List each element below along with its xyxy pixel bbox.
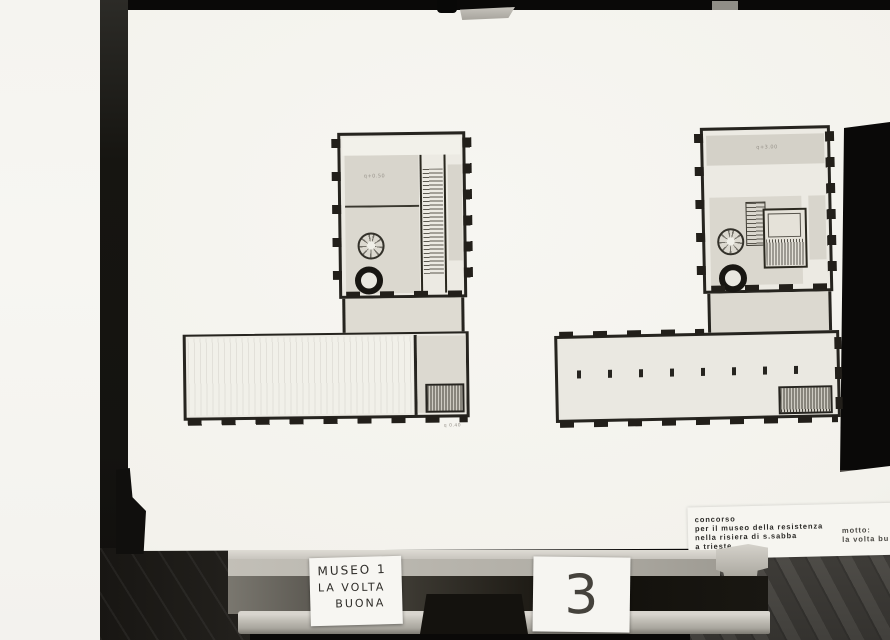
plan-right-stairbox: [778, 385, 833, 414]
board-clip-shadow: [460, 7, 515, 20]
title-card: MUSEO 1 LA VOLTA BUONA: [309, 556, 403, 626]
plan-left-pilasters-east: [462, 137, 473, 287]
motto-label: motto: la volta bu: [842, 525, 889, 544]
title-card-line-2: LA VOLTA: [318, 580, 402, 594]
plan-right-side-room: [808, 195, 826, 259]
easel-top-rail-face: [228, 559, 720, 576]
top-edge-highlight: [712, 1, 738, 10]
competition-label: concorso per il museo della resistenza n…: [695, 512, 824, 551]
panel-number: 3: [564, 567, 599, 622]
plan-left-pilasters-west: [331, 139, 342, 280]
motto-value: la volta bu: [842, 534, 889, 544]
plan-right-big-stair-inner: [768, 213, 801, 238]
floor-plan-left: q+0.50 q 0.40: [178, 126, 477, 435]
plan-right-level-note: q+3.00: [756, 144, 778, 150]
plan-left-room-c: [448, 164, 463, 260]
plan-left-stair-treads: [423, 169, 444, 274]
number-card: 3: [532, 556, 630, 632]
photo-backdrop: q+0.50 q 0.40 q+3.00 concorso per i: [0, 0, 890, 640]
board-clip-icon: [437, 0, 457, 13]
plan-left-top-band: [342, 136, 460, 155]
easel-dark-shadow: [420, 594, 528, 634]
plan-left-hall: [188, 336, 414, 416]
plan-left-detail-note: q 0.40: [444, 423, 461, 428]
plan-right-pilasters-east-low: [834, 337, 843, 415]
title-card-line-3: BUONA: [335, 596, 402, 611]
plan-left-room-a: [344, 155, 419, 208]
left-wall-strip: [0, 0, 100, 640]
title-card-line-1: MUSEO 1: [317, 561, 401, 578]
easel-top-rail-surface: [228, 550, 720, 559]
plan-left-level-note: q+0.50: [364, 173, 386, 179]
plan-right-big-stair-treads: [766, 239, 805, 266]
plan-left-stairbox: [425, 383, 464, 412]
plan-right-connector: [707, 291, 832, 333]
plan-right-pilasters-east: [825, 131, 837, 283]
floor-plan-right: q+3.00: [548, 121, 846, 437]
spiral-stair-icon: [357, 232, 384, 259]
plan-left-connector: [342, 297, 464, 334]
